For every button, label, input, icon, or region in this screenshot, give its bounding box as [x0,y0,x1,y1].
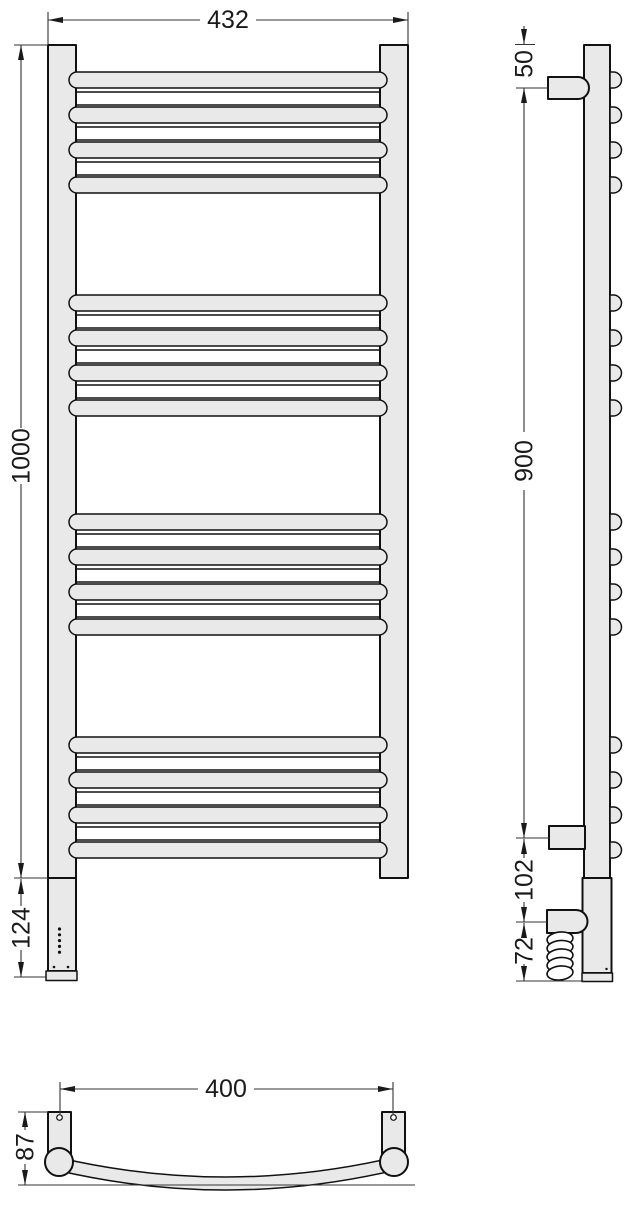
front-dim-heater: 124 [8,879,47,977]
side-rung-end [610,107,622,123]
side-rung-ends [610,72,622,858]
side-rung-end [610,177,622,193]
power-cable-coil [546,931,573,982]
bottom-view: 400 87 [12,1075,416,1190]
side-cable-bracket [547,910,588,933]
dim-label-heater-section: 124 [8,907,36,949]
side-rung-end [610,72,622,88]
front-rung-bar [69,330,387,346]
front-rung-bar [69,400,387,416]
front-rung-bar [69,365,387,381]
arrowhead [18,962,24,977]
arrowhead [22,1112,28,1127]
arrowhead [521,29,527,44]
front-left-post [48,45,76,878]
side-rung-end [610,365,622,381]
side-dim-bracket-to-cable: 102 [511,839,548,922]
side-rung-end [610,142,622,158]
heater-body [48,878,76,971]
dim-label-span-wrap: 900 [511,440,539,482]
heater-screw-dot [53,966,56,969]
arrowhead [18,45,24,60]
side-rung-end [610,619,622,635]
side-rung-end [610,807,622,823]
arrowhead [521,966,527,981]
dim-label-overall-width: 432 [207,6,249,34]
front-right-post [380,45,408,878]
towel-rail-technical-drawing: 432 1000 [0,0,635,1200]
arrowhead [393,17,408,23]
dim-label-depth: 87 [12,1133,40,1161]
front-rung-bar [69,549,387,565]
front-rung-bar [69,619,387,635]
side-rung-end [610,400,622,416]
side-rung-end [610,295,622,311]
heater-bottom-cap [46,971,77,981]
dim-label-bottom-gap-wrap: 72 [511,937,539,965]
bottom-left-post-section [45,1148,73,1176]
side-rung-end [610,737,622,753]
side-screw-dot [605,968,607,970]
front-rung-bar [69,177,387,193]
dim-label-heater-wrap: 124 [8,907,36,949]
dim-label-top-to-bracket: 50 [511,50,539,78]
side-dim-bracket-span: 900 [511,88,550,838]
front-rungs [69,72,387,858]
heater-led-dot [58,939,61,942]
front-rung-bar [69,107,387,123]
side-post [584,45,610,878]
arrowhead [521,839,527,854]
front-rung-bar [69,142,387,158]
heater-led-dot [58,933,61,936]
dim-label-cable-to-bottom: 72 [511,937,539,965]
side-view: 50 900 102 [511,26,622,982]
arrowhead [521,907,527,922]
dim-label-depth-wrap: 87 [12,1133,40,1161]
front-rung-bar [69,737,387,753]
side-rung-end [610,330,622,346]
side-rung-end [610,584,622,600]
front-rung-bar [69,842,387,858]
side-dim-top-to-bracket: 50 [511,26,539,78]
side-top-wall-bracket [548,77,589,99]
front-dim-height: 1000 [8,45,49,878]
front-rung-bar [69,295,387,311]
bottom-right-post-section [380,1148,408,1176]
dim-label-bracket-span: 900 [511,440,539,482]
arrowhead [18,879,24,894]
bracket-mounting-hole [57,1115,63,1121]
dim-label-mounting-width: 400 [205,1075,247,1103]
arrowhead [521,88,527,103]
arrowhead [521,923,527,938]
front-heating-element [46,878,77,981]
heater-led-dot [58,927,61,930]
dim-label-top-offset-wrap: 50 [511,50,539,78]
side-heater-bottom-cap [582,973,613,982]
arrowhead [48,17,63,23]
dim-label-overall-height-wrap: 1000 [8,428,36,484]
front-rung-bar [69,514,387,530]
arrowhead [18,863,24,878]
drawing-canvas: 432 1000 [0,0,635,1200]
front-rung-bar [69,807,387,823]
dim-label-cable-gap-wrap: 102 [511,859,539,901]
arrowhead [60,1086,75,1092]
dim-label-overall-height: 1000 [8,428,36,484]
side-rung-end [610,549,622,565]
side-lower-wall-bracket [549,826,585,849]
front-rung-bar [69,584,387,600]
bottom-dim-mounting-width: 400 [60,1075,393,1114]
side-rung-end [610,772,622,788]
heater-led-dot [58,945,61,948]
heater-screw-dot [67,966,70,969]
side-rung-end [610,514,622,530]
front-dim-width: 432 [48,6,408,44]
arrowhead [378,1086,393,1092]
front-view: 432 1000 [8,6,409,981]
arrowhead [22,1170,28,1185]
arrowhead [521,823,527,838]
front-rung-bar [69,72,387,88]
heater-led-dot [58,951,61,954]
bracket-mounting-hole [391,1115,397,1121]
dim-label-bracket-to-cable: 102 [511,859,539,901]
front-rung-bar [69,772,387,788]
side-rung-end [610,842,622,858]
